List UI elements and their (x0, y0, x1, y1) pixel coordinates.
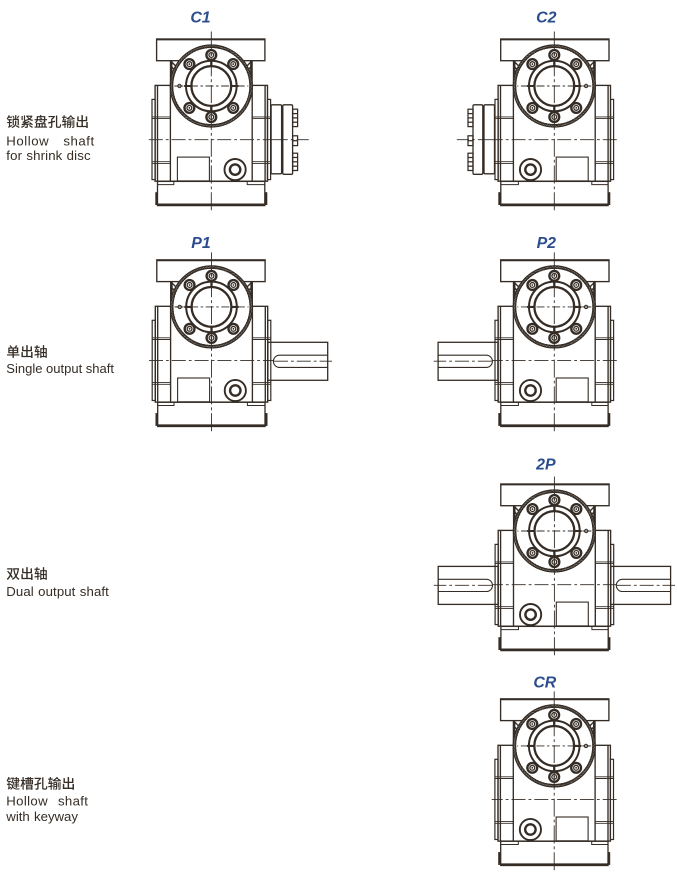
svg-text:CR: CR (533, 674, 556, 691)
svg-text:C2: C2 (536, 10, 556, 27)
svg-text:Hollow shaft: Hollow shaft (6, 133, 94, 148)
svg-text:P1: P1 (191, 235, 210, 252)
svg-text:2P: 2P (535, 457, 556, 474)
svg-text:Hollow shaft: Hollow shaft (6, 794, 88, 809)
svg-text:P2: P2 (537, 235, 557, 252)
svg-text:Single output shaft: Single output shaft (6, 361, 114, 376)
svg-text:Dual output shaft: Dual output shaft (6, 584, 109, 599)
svg-text:for shrink disc: for shrink disc (6, 148, 91, 163)
svg-text:C1: C1 (190, 10, 210, 27)
svg-text:with keyway: with keyway (5, 809, 78, 824)
